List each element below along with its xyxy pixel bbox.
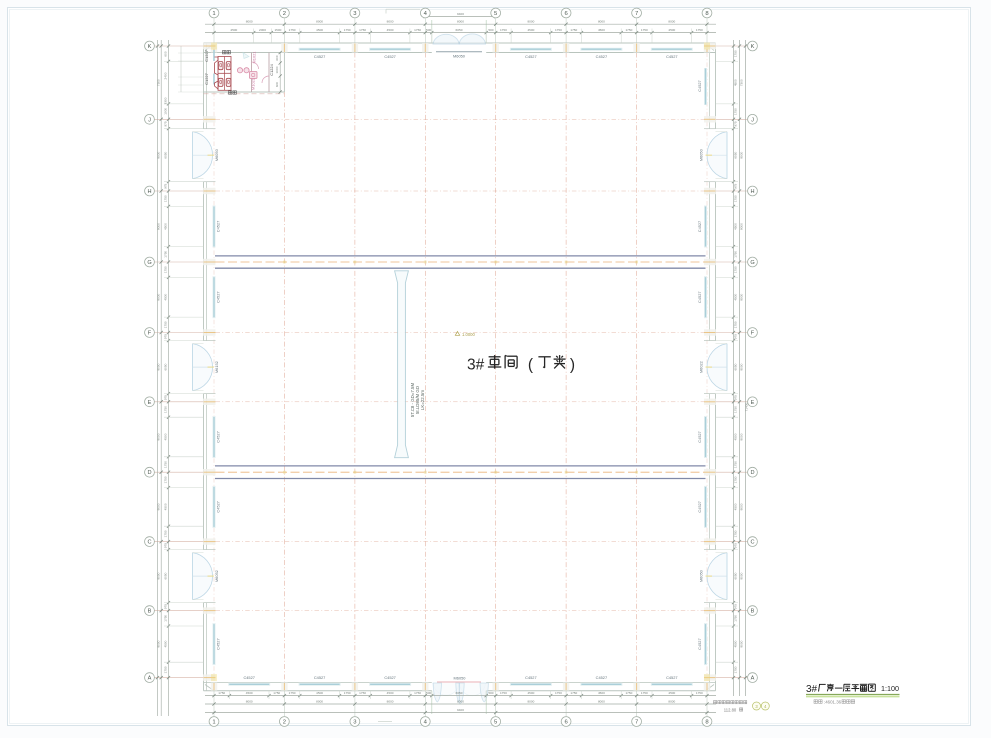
svg-text:1750: 1750 [163, 666, 167, 673]
svg-text:1750: 1750 [641, 28, 648, 32]
svg-text:4500: 4500 [163, 223, 167, 230]
svg-text:M6050: M6050 [454, 675, 467, 680]
svg-text:1750: 1750 [570, 28, 577, 32]
svg-text:C4527: C4527 [697, 431, 702, 442]
svg-text:8000: 8000 [387, 699, 394, 703]
svg-text:4500: 4500 [246, 691, 253, 695]
svg-text:4500: 4500 [316, 691, 323, 695]
svg-text:1750: 1750 [734, 476, 738, 483]
svg-text:4500: 4500 [734, 293, 738, 300]
svg-text:C4527: C4527 [384, 675, 395, 680]
svg-text:A: A [148, 676, 152, 682]
svg-text:8000: 8000 [156, 151, 160, 158]
svg-text:975: 975 [163, 183, 167, 188]
svg-text:9400: 9400 [457, 708, 464, 712]
svg-text:975: 975 [163, 543, 167, 548]
svg-text:1750: 1750 [696, 28, 703, 32]
svg-text:600: 600 [275, 55, 279, 60]
svg-text:1750: 1750 [734, 321, 738, 328]
svg-text:1750: 1750 [641, 691, 648, 695]
svg-text:): ) [570, 357, 575, 374]
svg-text:8000: 8000 [387, 20, 394, 24]
svg-text:8000: 8000 [156, 640, 160, 647]
svg-text:M6050: M6050 [699, 569, 704, 582]
svg-text:3#: 3# [806, 684, 818, 695]
svg-text:4500: 4500 [668, 28, 675, 32]
svg-text:1750: 1750 [163, 476, 167, 483]
svg-text:1750: 1750 [289, 28, 296, 32]
svg-text:8000: 8000 [668, 20, 675, 24]
svg-text:8000: 8000 [316, 699, 323, 703]
svg-text:8000: 8000 [156, 223, 160, 230]
svg-text:4500: 4500 [527, 28, 534, 32]
svg-text:8000: 8000 [156, 572, 160, 579]
svg-text:1750: 1750 [625, 691, 632, 695]
svg-text:C4527: C4527 [216, 638, 221, 649]
svg-text:C1227: C1227 [204, 72, 209, 85]
svg-text:D: D [147, 470, 151, 476]
svg-text:975: 975 [734, 604, 738, 609]
svg-text:8000: 8000 [246, 699, 253, 703]
svg-text:4500: 4500 [734, 640, 738, 647]
svg-text:J: J [751, 117, 754, 123]
svg-text:G: G [750, 260, 754, 266]
svg-text:1750: 1750 [218, 691, 225, 695]
svg-text:1750: 1750 [163, 195, 167, 202]
svg-text:8000: 8000 [740, 223, 744, 230]
svg-text:1750: 1750 [696, 691, 703, 695]
svg-text:4500: 4500 [387, 28, 394, 32]
svg-text:4500: 4500 [668, 691, 675, 695]
svg-text:975: 975 [734, 121, 738, 126]
svg-text:975: 975 [734, 543, 738, 548]
svg-text:500: 500 [488, 691, 493, 695]
svg-text:M6050: M6050 [453, 53, 466, 58]
svg-text:6050: 6050 [163, 151, 167, 158]
svg-text:E: E [751, 400, 755, 406]
svg-text:1750: 1750 [163, 321, 167, 328]
svg-text:J: J [148, 117, 151, 123]
svg-text:1750: 1750 [734, 195, 738, 202]
svg-text:C1227: C1227 [204, 49, 209, 62]
svg-text:8000: 8000 [740, 503, 744, 510]
svg-text:1750: 1750 [625, 28, 632, 32]
svg-text:B: B [148, 609, 152, 615]
svg-text:8000: 8000 [598, 699, 605, 703]
svg-text:975: 975 [163, 395, 167, 400]
svg-text:C4527: C4527 [697, 291, 702, 302]
svg-text:975: 975 [163, 604, 167, 609]
svg-text:8000: 8000 [740, 363, 744, 370]
svg-text:4500: 4500 [163, 433, 167, 440]
svg-text:M6152: M6152 [214, 361, 219, 373]
svg-text:8000: 8000 [156, 363, 160, 370]
svg-text:8000: 8000 [740, 151, 744, 158]
svg-text:C4527: C4527 [314, 675, 325, 680]
svg-text:C4527: C4527 [697, 221, 702, 232]
svg-text:1750: 1750 [734, 461, 738, 468]
svg-text:1750: 1750 [163, 251, 167, 258]
svg-text:8000: 8000 [598, 20, 605, 24]
svg-text:F: F [751, 331, 755, 337]
svg-text:1750: 1750 [555, 691, 562, 695]
svg-text:C: C [147, 540, 151, 546]
svg-text:1: 1 [212, 720, 215, 726]
svg-text:C4527: C4527 [697, 80, 702, 91]
svg-text:4500: 4500 [598, 691, 605, 695]
svg-text:M1021: M1021 [251, 52, 256, 64]
svg-text:4500: 4500 [163, 503, 167, 510]
svg-text:C4527: C4527 [666, 675, 677, 680]
svg-text:M6050: M6050 [214, 148, 219, 161]
svg-text:9400: 9400 [457, 12, 464, 16]
svg-text:7: 7 [635, 720, 638, 726]
svg-text:M6050: M6050 [699, 148, 704, 161]
svg-text:C4527: C4527 [525, 54, 536, 59]
svg-text:8000: 8000 [457, 20, 464, 24]
svg-text:1500: 1500 [274, 28, 281, 32]
svg-text:C4527: C4527 [243, 675, 254, 680]
svg-text:F: F [148, 331, 152, 337]
svg-text:500: 500 [426, 28, 431, 32]
svg-text:8000: 8000 [527, 699, 534, 703]
svg-text:1750: 1750 [734, 666, 738, 673]
svg-text:1750: 1750 [555, 28, 562, 32]
svg-text:6050: 6050 [456, 28, 463, 32]
svg-text:1750: 1750 [163, 615, 167, 622]
svg-text:1750: 1750 [734, 406, 738, 413]
svg-text:2000: 2000 [259, 28, 266, 32]
svg-text:4500: 4500 [734, 223, 738, 230]
svg-text:1750: 1750 [414, 691, 421, 695]
svg-text:975: 975 [163, 334, 167, 339]
svg-text:8000: 8000 [668, 699, 675, 703]
svg-text:4500: 4500 [598, 28, 605, 32]
svg-text:600: 600 [163, 51, 167, 56]
svg-text:E: E [148, 400, 152, 406]
svg-text:6050: 6050 [456, 691, 463, 695]
svg-text:B: B [751, 609, 755, 615]
svg-text:600: 600 [275, 82, 279, 87]
svg-text:4500: 4500 [316, 28, 323, 32]
svg-text:H: H [750, 189, 754, 195]
svg-text:4500: 4500 [734, 503, 738, 510]
svg-text:H: H [147, 189, 151, 195]
svg-text:8000: 8000 [740, 640, 744, 647]
svg-text:(: ( [528, 357, 534, 374]
svg-text:C4527: C4527 [596, 675, 607, 680]
svg-text:975: 975 [734, 334, 738, 339]
svg-text:C4527: C4527 [596, 54, 607, 59]
svg-text:4500: 4500 [734, 79, 738, 86]
svg-text:LK=22.5m: LK=22.5m [420, 390, 425, 410]
svg-text:3#: 3# [467, 356, 485, 373]
svg-text:1750: 1750 [163, 461, 167, 468]
svg-text:1000: 1000 [275, 66, 279, 73]
svg-text:M6052: M6052 [214, 570, 219, 582]
svg-text:1750: 1750 [163, 266, 167, 273]
svg-text:975: 975 [734, 183, 738, 188]
svg-text:K: K [148, 44, 152, 50]
svg-text:500: 500 [426, 691, 431, 695]
svg-text:1750: 1750 [359, 691, 366, 695]
svg-text:G: G [147, 260, 151, 266]
svg-text:C: C [750, 540, 754, 546]
svg-text:1750: 1750 [734, 108, 738, 115]
svg-text:4500: 4500 [734, 433, 738, 440]
svg-text:M1021: M1021 [250, 78, 255, 90]
svg-text:C4527: C4527 [216, 431, 221, 442]
svg-text:2400: 2400 [163, 72, 167, 79]
svg-text:1750: 1750 [734, 530, 738, 537]
svg-text:1750: 1750 [163, 406, 167, 413]
svg-text:D: D [750, 470, 754, 476]
svg-text:6050: 6050 [734, 151, 738, 158]
svg-text:C4527: C4527 [697, 501, 702, 512]
svg-text:C1224: C1224 [269, 63, 274, 75]
svg-text:4500: 4500 [387, 691, 394, 695]
svg-text:C4527: C4527 [666, 54, 677, 59]
svg-text:1750: 1750 [500, 28, 507, 32]
svg-text:1750: 1750 [570, 691, 577, 695]
svg-text:8000: 8000 [740, 293, 744, 300]
svg-text:8000: 8000 [457, 699, 464, 703]
svg-text:8000: 8000 [527, 20, 534, 24]
svg-text:6050: 6050 [163, 363, 167, 370]
svg-text::4601.36: :4601.36 [824, 699, 842, 704]
svg-text:975: 975 [163, 121, 167, 126]
svg-text:8000: 8000 [740, 433, 744, 440]
svg-text:7300: 7300 [156, 79, 160, 86]
svg-text:6050: 6050 [734, 363, 738, 370]
svg-text:1750: 1750 [734, 266, 738, 273]
svg-text:C4527: C4527 [216, 221, 221, 232]
svg-text:1:100: 1:100 [881, 684, 899, 693]
svg-text:1.0000: 1.0000 [462, 332, 475, 337]
svg-text:2: 2 [283, 11, 286, 17]
svg-text:C4527: C4527 [525, 675, 536, 680]
svg-text:1750: 1750 [163, 530, 167, 537]
svg-text:6050: 6050 [734, 572, 738, 579]
svg-text:2: 2 [283, 720, 286, 726]
svg-text:1750: 1750 [289, 691, 296, 695]
svg-text:1: 1 [212, 11, 215, 17]
svg-text:8000: 8000 [156, 293, 160, 300]
svg-text:C4527: C4527 [314, 54, 325, 59]
svg-text:1750: 1750 [414, 28, 421, 32]
svg-text:K: K [751, 44, 755, 50]
svg-text:C4527: C4527 [216, 501, 221, 512]
svg-text:8000: 8000 [156, 433, 160, 440]
svg-text:1750: 1750 [734, 615, 738, 622]
svg-text:1750: 1750 [344, 691, 351, 695]
svg-text:M6022: M6022 [699, 361, 704, 373]
svg-text:1750: 1750 [500, 691, 507, 695]
svg-text:8000: 8000 [316, 20, 323, 24]
svg-text:975: 975 [734, 395, 738, 400]
svg-text:1750: 1750 [344, 28, 351, 32]
svg-text:8000: 8000 [740, 572, 744, 579]
svg-text:8000: 8000 [246, 20, 253, 24]
svg-text:500: 500 [488, 28, 493, 32]
svg-text:1750: 1750 [734, 251, 738, 258]
svg-text:8000: 8000 [156, 503, 160, 510]
svg-text:4500: 4500 [527, 691, 534, 695]
svg-text:C4527: C4527 [384, 54, 395, 59]
svg-text:4500: 4500 [163, 640, 167, 647]
svg-text:7300: 7300 [740, 79, 744, 86]
svg-text:1750: 1750 [359, 28, 366, 32]
svg-text:6050: 6050 [163, 572, 167, 579]
svg-text:3300: 3300 [163, 97, 167, 104]
svg-text:4500: 4500 [230, 28, 237, 32]
svg-text:1750: 1750 [734, 50, 738, 57]
svg-text:C4527: C4527 [216, 291, 221, 302]
svg-text:1750: 1750 [273, 691, 280, 695]
svg-text:A: A [751, 676, 755, 682]
svg-text:1000: 1000 [163, 108, 167, 115]
svg-text:112.80: 112.80 [724, 707, 737, 712]
svg-text:C4527: C4527 [697, 638, 702, 649]
svg-text:7: 7 [635, 11, 638, 17]
svg-text:4500: 4500 [163, 293, 167, 300]
